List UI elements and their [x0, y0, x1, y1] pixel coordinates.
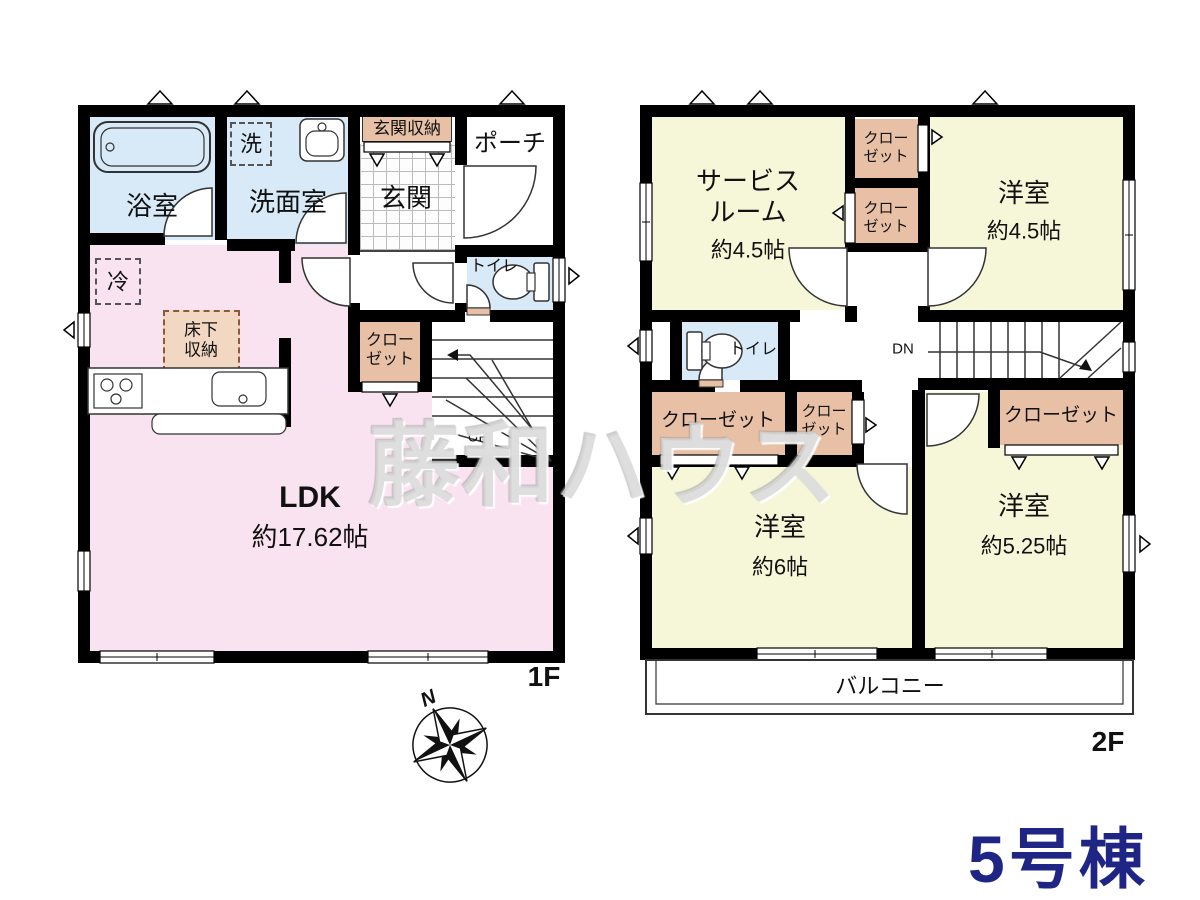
- vent-icon: [148, 91, 172, 104]
- label-washroom: 洗面室: [249, 188, 327, 218]
- label-yoshitsu45-size: 約4.5帖: [987, 218, 1062, 243]
- label-closet-b: クローゼット: [858, 200, 914, 236]
- arrow-right-icon: [1140, 536, 1150, 552]
- label-ldk: LDK: [279, 481, 341, 516]
- linework-layer: N: [0, 0, 1200, 900]
- label-entrance-storage: 玄関収納: [373, 119, 441, 139]
- label-fridge: 冷: [107, 269, 129, 294]
- arrow-left-icon: [628, 338, 638, 354]
- door-service: [789, 248, 847, 306]
- label-underfloor: 床下収納: [181, 321, 221, 362]
- door-yoshitsu525: [927, 394, 979, 446]
- stairs-2f: [928, 322, 1121, 378]
- arrow-right-icon: [569, 268, 579, 284]
- compass-icon: N: [388, 672, 504, 798]
- label-up: UP: [468, 428, 489, 445]
- label-toilet-2f: トイレ: [729, 341, 777, 359]
- label-closet-1f: クローゼット: [362, 331, 418, 369]
- door-entrance: [464, 166, 536, 238]
- sill-toilet-2f: [699, 380, 723, 387]
- label-porch: ポーチ: [474, 130, 546, 158]
- vent-icon: [235, 91, 259, 104]
- label-entrance: 玄関: [380, 184, 432, 214]
- stairs-2f-arrowhead: [1079, 359, 1092, 371]
- door-hall-side: [413, 263, 453, 303]
- label-toilet-1f: トイレ: [470, 258, 518, 276]
- label-ldk-size: 約17.62帖: [251, 523, 368, 553]
- arrow-left-icon: [833, 206, 843, 220]
- vent-icon: [690, 91, 714, 104]
- label-balcony: バルコニー: [835, 673, 945, 698]
- label-closet-d: クローゼット: [796, 403, 852, 439]
- sill-toilet-1f: [467, 308, 490, 315]
- arrow-right-icon: [866, 418, 876, 432]
- label-service-size: 約4.5帖: [711, 237, 786, 262]
- label-closet-e: クローゼット: [1004, 405, 1118, 427]
- bathtub-icon: [94, 122, 210, 172]
- building-number-label: 5号棟: [968, 806, 1149, 900]
- label-yoshitsu525-size: 約5.25帖: [981, 533, 1068, 558]
- label-yoshitsu6-size: 約6帖: [752, 554, 808, 579]
- compass-n-label: N: [417, 686, 440, 712]
- label-closet-c: クローゼット: [661, 410, 775, 432]
- vent-icon: [500, 91, 524, 104]
- door-hall-ldk: [302, 258, 350, 306]
- floorplan-canvas: N 浴室 洗面室 洗 玄関収納 玄関 ポーチ トイレ クローゼット 冷 床下収納…: [0, 0, 1200, 900]
- door-toilet-1f: [467, 285, 490, 308]
- arrow-left-icon: [628, 528, 638, 544]
- label-floor2: 2F: [1092, 726, 1125, 758]
- washbasin-icon: [300, 119, 344, 161]
- label-service-room: サービスルーム: [690, 166, 806, 228]
- label-bath: 浴室: [126, 192, 178, 222]
- vent-icon: [748, 91, 772, 104]
- stairs-1f: [432, 340, 553, 461]
- arrow-left-icon: [64, 322, 74, 338]
- label-washer: 洗: [240, 131, 262, 156]
- vent-icon: [973, 91, 997, 104]
- label-closet-a: クローゼット: [858, 130, 914, 166]
- label-yoshitsu6: 洋室: [754, 513, 806, 543]
- kitchen-icon: [88, 368, 288, 434]
- label-floor1: 1F: [528, 661, 561, 693]
- label-yoshitsu525: 洋室: [998, 492, 1050, 522]
- label-yoshitsu45: 洋室: [998, 179, 1050, 209]
- arrow-right-icon: [932, 130, 942, 144]
- label-dn: DN: [892, 340, 914, 357]
- door-yoshitsu45: [928, 248, 986, 306]
- door-yoshitsu6: [857, 464, 907, 514]
